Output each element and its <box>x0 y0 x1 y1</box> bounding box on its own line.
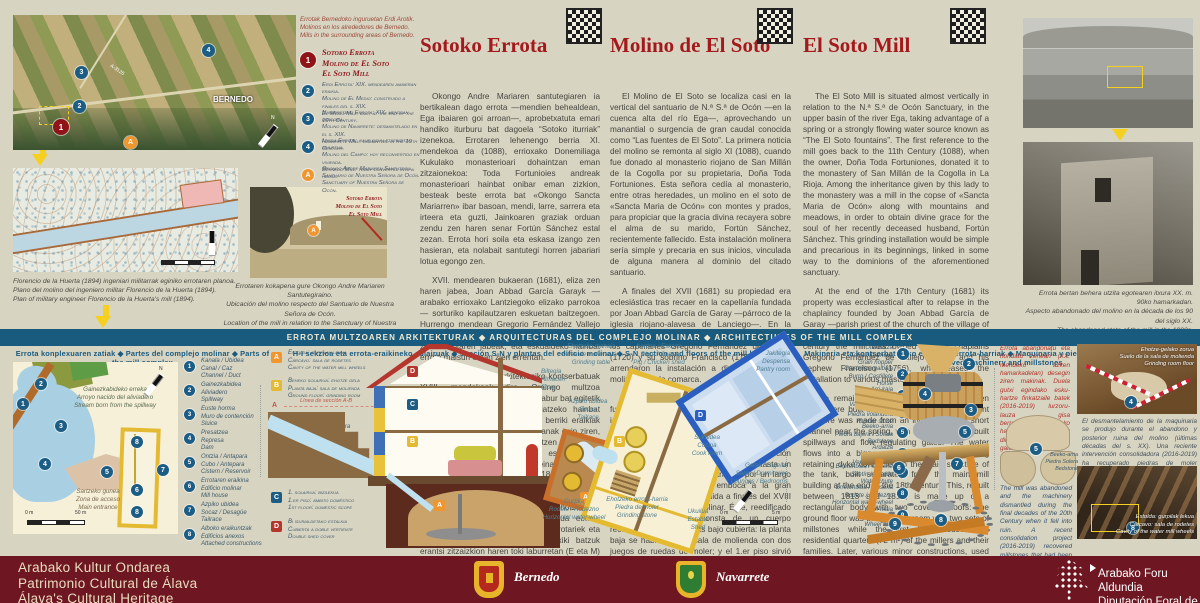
label-stable: Ukuilua Establo Shed <box>678 508 718 531</box>
mill-highlight-box <box>1107 66 1143 88</box>
label-grinding-stone: Ehotzeko errota-harria Piedra de moler G… <box>604 496 670 519</box>
cross-section-drawing: D C B A <box>268 344 560 548</box>
parts-text: Gainezkabidea Aliviadero Spillway <box>201 382 241 405</box>
legend-item-a: A Okongo Andre Mariaren Santutegia. Sant… <box>300 166 420 195</box>
carcavo-wheel-2 <box>560 469 585 494</box>
bernedo-crest <box>474 561 504 598</box>
qr-code-english <box>950 8 986 44</box>
millstone-fragments: 5 <box>1000 415 1076 487</box>
tree-silhouette <box>250 187 294 253</box>
sepia-photo: A Sotoko Errota Molino de El Soto El Sot… <box>250 187 387 278</box>
parts-legend-item: 4Presatzea Represa Dam <box>184 430 228 453</box>
label-bedrooms: Gelak / Logelak Salas / Dormitorios Loun… <box>722 462 788 485</box>
parts-legend-item: 7Azpiko ubidea Socaz / Desagüe Tailrace <box>184 502 247 525</box>
dfa-logo <box>1048 559 1092 601</box>
english-paragraph-1: The El Soto Mill is situated almost vert… <box>803 92 989 279</box>
ruin-window <box>1095 178 1111 202</box>
navarrete-label: Navarrete <box>716 569 769 585</box>
plan-dot-6: 6 <box>131 484 143 496</box>
plan-dot-5: 5 <box>101 466 113 478</box>
road-label: A-3126 <box>109 63 126 77</box>
parts-dot: 7 <box>184 505 195 516</box>
basque-paragraph-1: Okongo Andre Mariaren santutegiaren ia b… <box>420 92 600 268</box>
bernedo-crest-castle <box>486 573 493 583</box>
aerial-map: A-3126 BERNEDO 4 3 2 1 A N <box>13 15 296 150</box>
map-legend: Errotak Bernedoko inguruetan Erdi Arotik… <box>300 16 420 40</box>
parts-dot: 3 <box>184 409 195 420</box>
footer-title: Arabako Kultur Ondarea Patrimonio Cultur… <box>18 560 197 603</box>
waterwheel-hub <box>927 500 955 512</box>
label-wheel: Gurpila Rodete / Rodezno Horizontal wate… <box>538 498 610 521</box>
plan-dot-8b: 8 <box>131 506 143 518</box>
site-plan-compass-n: N <box>159 366 163 372</box>
label-grinding-table: Ehotzeko mahaia Mesa de molturación Grin… <box>556 343 626 366</box>
parts-dot: 8 <box>184 529 195 540</box>
parts-dot: 1 <box>184 361 195 372</box>
dfa-label: Arabako Foru Aldundia Diputación Foral d… <box>1098 568 1200 603</box>
navarrete-crest-field <box>680 565 702 593</box>
legend-dot-4: 4 <box>302 141 314 153</box>
hills-bw <box>1023 26 1193 48</box>
plan-compass-icon <box>209 230 215 256</box>
plans-scale-left: 0 m <box>720 510 728 516</box>
label-pig-shed: Kortina / Eskorta Piara / Corral Pig / C… <box>628 343 690 366</box>
compass-n: N <box>271 115 275 121</box>
house-left-wall <box>374 386 385 478</box>
arrow-photo-to-photo <box>1112 129 1128 141</box>
qr-code-spanish <box>757 8 793 44</box>
map-marker-4: 4 <box>202 44 215 57</box>
mach-dot-4: 4 <box>919 388 931 400</box>
mach-dot-2: 2 <box>963 358 975 370</box>
parts-text: Presatzea Represa Dam <box>201 430 228 453</box>
footer-bar: Arabako Kultur Ondarea Patrimonio Cultur… <box>0 556 1200 603</box>
parts-legend-item: 8Alboko eraikuntzak Edificios anexos Att… <box>184 526 262 549</box>
sepia-overlay-label: Sotoko Errota Molino de El Soto El Soto … <box>312 195 382 218</box>
plan-dot-1: 1 <box>17 398 29 410</box>
parts-text: Kanala / Ubidea Canal / Caz Channel / Du… <box>201 358 244 381</box>
mach-dot-9: 9 <box>889 518 901 530</box>
carcavo-post <box>458 494 462 534</box>
road-line-2 <box>79 15 128 89</box>
legend-item-1-text: Sotoko Errota Molino de El Soto El Soto … <box>322 48 420 80</box>
millstone-piece-2 <box>1000 451 1036 487</box>
mach-dot-7: 7 <box>951 458 963 470</box>
plan-map-1894 <box>13 168 238 272</box>
parts-legend-item: 3Euste horma Muro de contención Sluice <box>184 406 254 429</box>
grinding-stone-1 <box>622 423 650 451</box>
mach-dot-3: 3 <box>965 404 977 416</box>
spanish-paragraph-1: El Molino de El Soto se localiza casi en… <box>610 92 791 279</box>
mach-dot-5: 5 <box>959 426 971 438</box>
parts-text: Azpiko ubidea Socaz / Desagüe Tailrace <box>201 502 247 525</box>
photo-grinding-floor-label: Ehotze-gelako zorua Suelo de la sala de … <box>1114 347 1194 369</box>
legend-dot-2: 2 <box>302 85 314 97</box>
vegetation-green <box>70 362 109 381</box>
plan-dot-2: 2 <box>35 378 47 390</box>
legend-item-a-text: Okongo Andre Mariaren Santutegia. Santua… <box>322 166 420 195</box>
map-marker-a: A <box>124 136 137 149</box>
plans-scale-right: 5 m <box>772 510 780 516</box>
arrow-map-to-plan-head <box>32 154 48 166</box>
legend-dot-1: 1 <box>300 52 316 68</box>
bernedo-label: BERNEDO <box>213 95 253 104</box>
photo-grinding-floor-dot: 4 <box>1125 396 1137 408</box>
heritage-panel: A-3126 BERNEDO 4 3 2 1 A N Florencio de … <box>0 0 1200 603</box>
parts-legend-item: 1Kanala / Ubidea Canal / Caz Channel / D… <box>184 358 244 381</box>
parts-dot: 2 <box>184 385 195 396</box>
parts-legend-item: 2Gainezkabidea Aliviadero Spillway <box>184 382 241 405</box>
legend-dot-3: 3 <box>302 113 314 125</box>
photo-carcavo: 8 Estolda: gurpilak lekua Cárcavo: sala … <box>1077 466 1197 539</box>
legend-dot-a: A <box>302 169 314 181</box>
bernedo-label: Bernedo <box>514 569 560 585</box>
mach-dot-6: 6 <box>893 462 905 474</box>
millstone-label: Beeko-arria Piedra Solera Bedstone <box>1040 452 1078 472</box>
map-marker-3: 3 <box>75 66 88 79</box>
table-leg-1 <box>866 458 884 517</box>
photo-carcavo-label: Estolda: gurpilak lekua Cárcavo: sala de… <box>1104 514 1194 536</box>
parts-text: Alboko eraikuntzak Edificios anexos Atta… <box>201 526 262 549</box>
qr-code-basque <box>566 8 602 44</box>
parts-text: Errotaren eraikina Edificio molinar Mill… <box>201 478 249 501</box>
hopper <box>907 344 971 374</box>
map-marker-2: 2 <box>73 100 86 113</box>
plan-dot-4: 4 <box>39 458 51 470</box>
article-title-spanish: Molino de El Soto <box>610 33 770 58</box>
mach-dot-1: 1 <box>897 348 909 360</box>
mach-dot-8: 8 <box>935 514 947 526</box>
navarrete-crest-charge <box>688 571 694 579</box>
drawing-chip-b: B <box>407 436 418 447</box>
plan-caption: Florencio de la Huerta (1894) ingeniari … <box>13 277 248 305</box>
vat-mouth <box>925 374 961 392</box>
article-title-english: El Soto Mill <box>803 33 910 58</box>
machinery-illustration: 1 2 4 3 5 6 7 8 9 <box>855 340 995 540</box>
label-tailrace: Azpiko ubidea Socaz Tailrace <box>566 398 610 421</box>
plans-chip-d: D <box>695 410 706 421</box>
site-plan-scale <box>27 520 85 525</box>
parts-dot: 6 <box>184 481 195 492</box>
separator-1 <box>260 385 261 477</box>
plans-chip-b: B <box>614 436 625 447</box>
site-plan-diagram: Gainezkabideko erreka Arroyo nacido del … <box>13 362 178 534</box>
parts-text: Ontzia / Antapara Cubo / Antepara Cister… <box>201 454 251 477</box>
site-plan-scale-left: 0 m <box>25 510 33 516</box>
plan-scale-bar <box>161 260 215 265</box>
photo-landscape-bw <box>1023 18 1193 128</box>
parts-text: Euste horma Muro de contención Sluice <box>201 406 254 429</box>
label-kitchen: Sukaldea Cocina Cook room <box>684 434 730 457</box>
parts-dot: 4 <box>184 433 195 444</box>
plan-dot-7: 7 <box>157 464 169 476</box>
sepia-marker-a: A <box>308 225 319 236</box>
plan-dot-8a: 8 <box>131 436 143 448</box>
ruin-wall <box>1061 157 1153 285</box>
plan-dot-3: 3 <box>55 420 67 432</box>
label-pantry: Jakitegia Despensa Pantry room <box>742 350 790 373</box>
legend-item-1: 1 Sotoko Errota Molino de El Soto El Sot… <box>300 48 420 80</box>
drawing-chip-d: D <box>407 366 418 377</box>
map-legend-header: Errotak Bernedoko inguruetan Erdi Arotik… <box>300 16 420 40</box>
photo-ruin-bw <box>1023 142 1193 285</box>
parts-dot: 5 <box>184 457 195 468</box>
plans-compass-icon <box>733 489 754 513</box>
parts-legend-item: 5Ontzia / Antapara Cubo / Antepara Ciste… <box>184 454 251 477</box>
ruin-door <box>1081 250 1099 285</box>
right-photos-caption: Errota bertan behera utzita egotearen it… <box>1023 289 1193 335</box>
entrance-label: Sartzeko gunea Zona de acceso Main entra… <box>65 488 131 511</box>
article-title-basque: Sotoko Errota <box>420 33 547 58</box>
arrow-to-banner-head <box>95 316 111 328</box>
site-plan-scale-right: 50 m <box>75 510 86 516</box>
photo-grinding-floor: Ehotze-gelako zorua Suelo de la sala de … <box>1077 344 1197 414</box>
miller-figure <box>526 444 538 478</box>
dfa-arrow-icon <box>1090 564 1096 572</box>
map-marker-1: 1 <box>53 119 69 135</box>
plans-scale <box>722 520 778 525</box>
label-store: Biltegia Almacén Store <box>541 368 581 391</box>
drawing-chip-a: A <box>434 500 445 511</box>
drawing-chip-c: C <box>407 399 418 410</box>
millstone-base <box>448 460 502 476</box>
parts-legend-item: 6Errotaren eraikina Edificio molinar Mil… <box>184 478 249 501</box>
navarrete-crest <box>676 561 706 598</box>
